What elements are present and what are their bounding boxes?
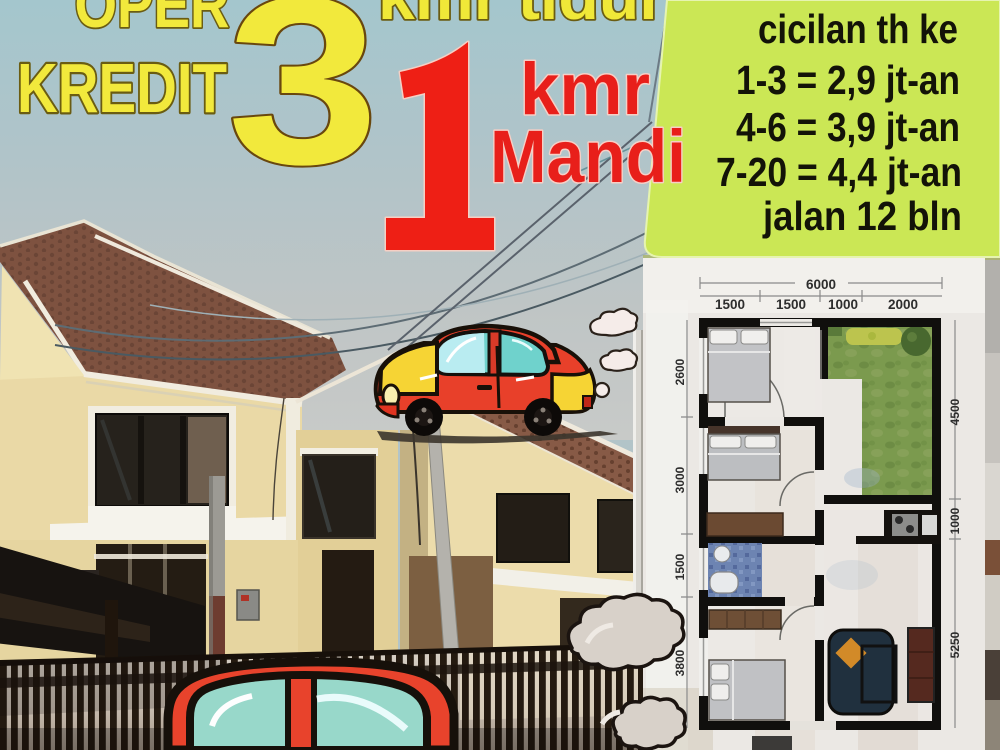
svg-text:cicilan th ke: cicilan th ke [758, 6, 958, 52]
svg-text:5250: 5250 [948, 631, 962, 658]
svg-text:1000: 1000 [828, 297, 858, 312]
svg-text:jalan 12 bln: jalan 12 bln [762, 193, 962, 239]
svg-text:Mandi: Mandi [490, 115, 686, 198]
svg-text:OPER: OPER [75, 0, 230, 41]
svg-text:4-6 = 3,9 jt-an: 4-6 = 3,9 jt-an [736, 104, 960, 150]
svg-text:4500: 4500 [948, 398, 962, 425]
svg-text:kmr tidur: kmr tidur [378, 0, 665, 33]
svg-text:3800: 3800 [673, 649, 687, 676]
svg-text:2000: 2000 [888, 297, 918, 312]
svg-text:2600: 2600 [673, 358, 687, 385]
svg-text:7-20 = 4,4 jt-an: 7-20 = 4,4 jt-an [716, 149, 962, 195]
svg-text:6000: 6000 [806, 277, 836, 292]
svg-text:KREDIT: KREDIT [17, 49, 227, 127]
svg-text:1-3 = 2,9 jt-an: 1-3 = 2,9 jt-an [736, 57, 960, 103]
svg-text:3000: 3000 [673, 466, 687, 493]
svg-text:1500: 1500 [776, 297, 806, 312]
svg-text:3: 3 [227, 0, 379, 214]
svg-text:1500: 1500 [673, 553, 687, 580]
svg-text:1000: 1000 [948, 507, 962, 534]
svg-text:1500: 1500 [715, 297, 745, 312]
